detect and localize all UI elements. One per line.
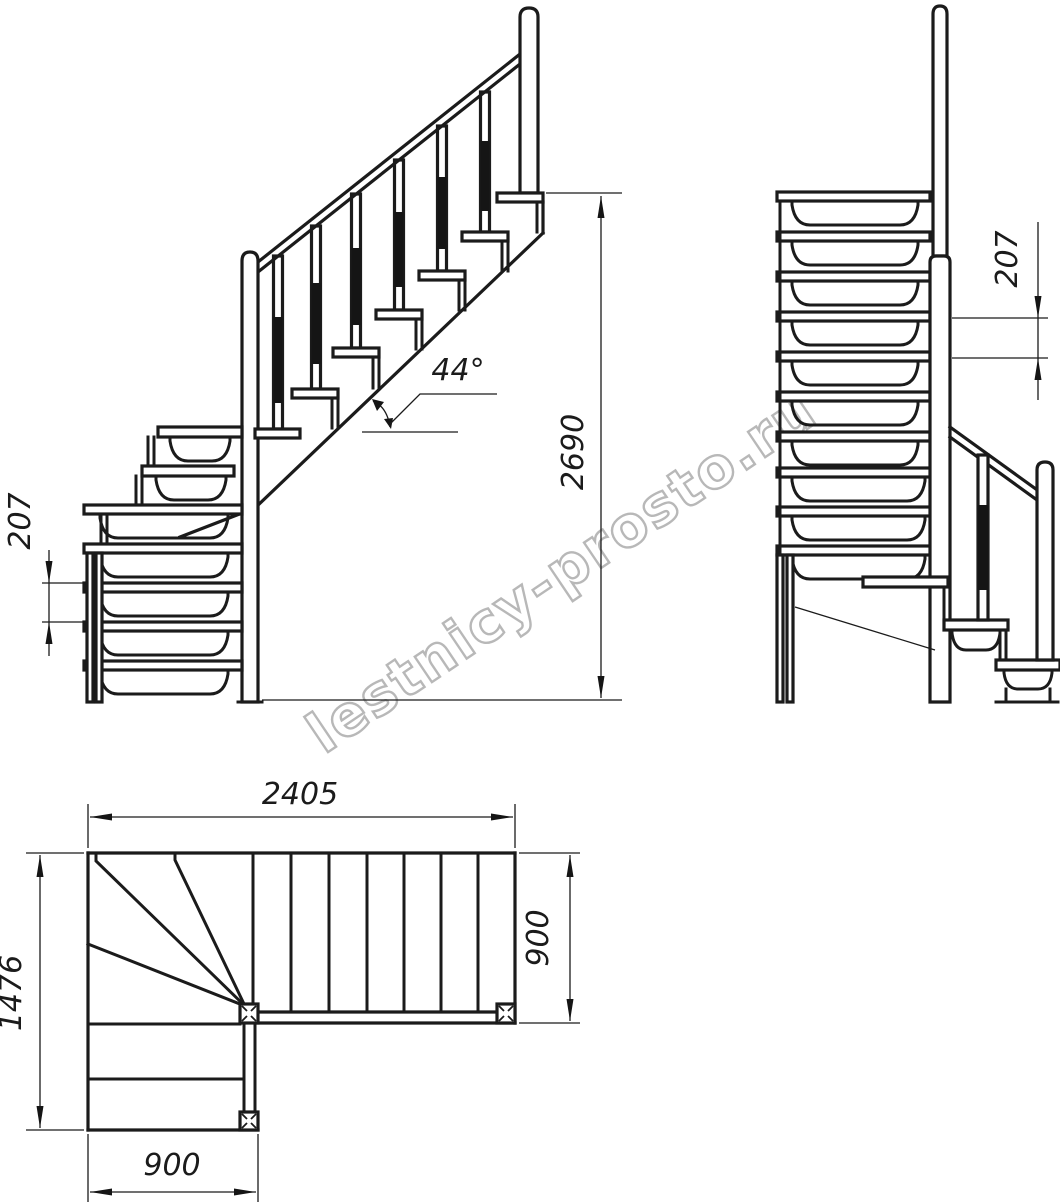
front-end-post bbox=[1037, 462, 1053, 660]
dimension-riser-height-side: 207 bbox=[3, 492, 86, 656]
front-support-legs bbox=[777, 555, 793, 702]
middle-newel-post bbox=[242, 252, 258, 702]
front-elevation-view: 207 bbox=[777, 6, 1060, 702]
dimension-plan-flight-width: 900 bbox=[519, 853, 580, 1023]
front-newel-post bbox=[930, 256, 950, 702]
dim-plan-depth: 1476 bbox=[0, 955, 29, 1031]
front-lower-steps bbox=[863, 577, 1060, 702]
technical-drawing: 44° 207 2690 bbox=[0, 0, 1060, 1204]
dim-plan-lower-width: 900 bbox=[143, 1148, 200, 1183]
front-upper-post bbox=[933, 6, 947, 256]
winder-step-stack bbox=[84, 427, 242, 694]
plan-view: 2405 900 1476 bbox=[0, 777, 580, 1202]
plan-lower-steps bbox=[88, 1024, 244, 1079]
dimension-plan-lower-width: 900 bbox=[88, 1134, 258, 1202]
winder-fan-lines bbox=[88, 853, 245, 1006]
dim-plan-length: 2405 bbox=[262, 777, 338, 812]
dim-stair-angle: 44° bbox=[431, 353, 484, 388]
front-stringer-line bbox=[795, 607, 935, 650]
angle-annotation: 44° bbox=[362, 353, 497, 432]
side-elevation-view: 44° 207 2690 bbox=[3, 8, 622, 702]
dimension-plan-length: 2405 bbox=[88, 777, 515, 848]
dimension-plan-depth: 1476 bbox=[0, 853, 84, 1130]
dim-riser-height-side: 207 bbox=[3, 492, 38, 549]
plan-handrail-strip bbox=[244, 1012, 515, 1112]
dimension-riser-height-front: 207 bbox=[952, 222, 1048, 400]
front-tread-stack bbox=[777, 192, 941, 579]
blueprint-page: lestnicy-prosto.ru bbox=[0, 0, 1060, 1204]
dim-total-height: 2690 bbox=[556, 414, 591, 490]
straight-flight-treads bbox=[253, 853, 478, 1012]
dim-plan-flight-width: 900 bbox=[521, 909, 556, 966]
plan-outline bbox=[88, 853, 515, 1130]
support-legs bbox=[87, 553, 102, 702]
top-newel-post bbox=[520, 8, 538, 193]
dim-riser-height-front: 207 bbox=[990, 230, 1025, 287]
